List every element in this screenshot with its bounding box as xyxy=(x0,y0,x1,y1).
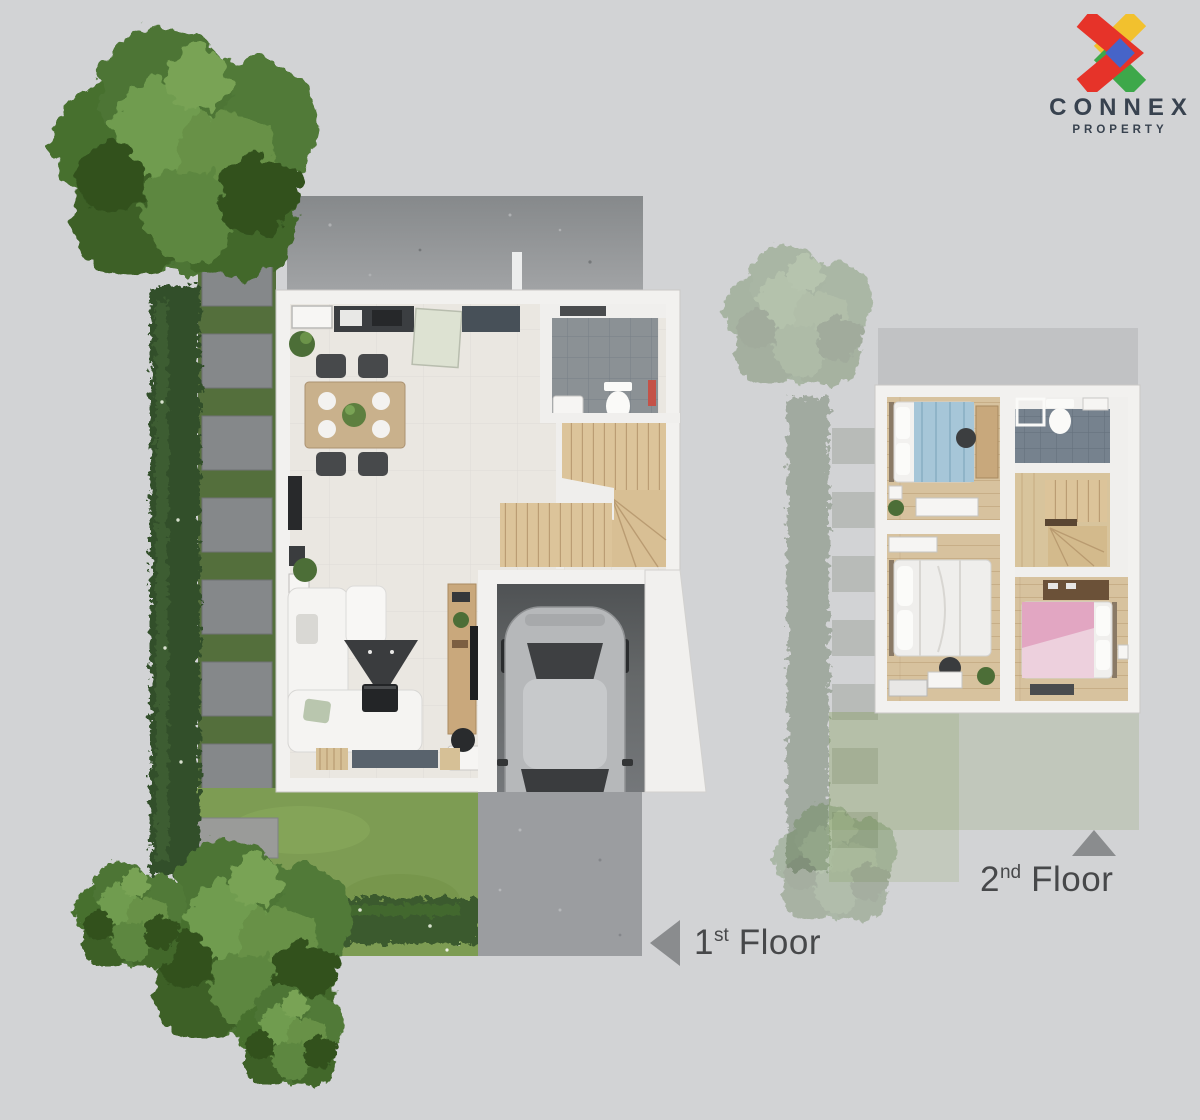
side-hedge xyxy=(150,286,200,876)
kitchen-counter-2 xyxy=(462,306,520,332)
pillow xyxy=(1096,606,1110,636)
car-rear-deck xyxy=(525,614,605,626)
house2-center-wall xyxy=(1000,397,1015,701)
logo-subtitle-text: PROPERTY xyxy=(1072,124,1167,136)
refrigerator xyxy=(412,308,462,367)
connex-logo: CONNEX PROPERTY xyxy=(1040,14,1196,136)
toilet-tank xyxy=(604,382,632,391)
console-plant xyxy=(453,612,469,628)
toilet2 xyxy=(1049,408,1071,434)
scene-svg xyxy=(0,0,1200,1120)
house-first-floor xyxy=(276,290,706,792)
dining-chair xyxy=(316,354,346,378)
bedroom3-nightstand xyxy=(1118,645,1128,659)
bedroom1-plant xyxy=(888,500,904,516)
bathroom2-vanity xyxy=(1083,398,1108,410)
pillow xyxy=(897,610,913,650)
entry-slat-mat xyxy=(440,748,460,770)
ghost-top-tree xyxy=(725,245,872,386)
car-rear-glass xyxy=(527,643,603,681)
stairs-winders xyxy=(610,490,666,567)
tv-screen xyxy=(470,626,478,700)
logo-brand-text: CONNEX xyxy=(1049,94,1194,122)
bedroom-2 xyxy=(887,534,1000,701)
second-floor-plan xyxy=(725,245,1140,922)
stairs-lower-flight xyxy=(500,503,612,567)
stairwell-2f xyxy=(1015,473,1128,577)
bedroom1-dresser xyxy=(916,498,978,516)
bedroom2-desk xyxy=(928,672,962,688)
kitchen-sink xyxy=(340,310,362,326)
ghost-patio xyxy=(878,328,1138,390)
stairwell-winders xyxy=(1048,526,1107,566)
bathroom-vent xyxy=(560,306,606,316)
bedroom2-dresser-top xyxy=(889,537,937,552)
pillow xyxy=(896,407,910,439)
cooktop xyxy=(372,310,402,326)
first-floor-plan xyxy=(54,27,706,1087)
patio-wall-stub xyxy=(512,252,522,294)
bedroom3-bench xyxy=(1030,684,1074,695)
sage-pillow xyxy=(303,698,332,723)
bedroom2-dresser xyxy=(889,680,927,696)
bed1-headboard xyxy=(889,402,894,482)
driveway xyxy=(478,792,642,956)
rear-patio-slab xyxy=(287,196,643,294)
ghost-hedge xyxy=(787,398,829,870)
up-arrow-icon xyxy=(1072,830,1116,856)
car-mirror xyxy=(497,759,508,766)
dining-chair xyxy=(316,452,346,476)
entry-mat xyxy=(352,750,438,768)
bathroom-wall xyxy=(540,304,552,416)
pillow xyxy=(897,566,913,606)
bedroom1-desk xyxy=(976,406,998,478)
first-floor-label: 1stFloor xyxy=(650,920,821,966)
living-room xyxy=(288,584,484,770)
wall-shelf xyxy=(288,476,302,530)
second-floor-text: 2ndFloor xyxy=(980,860,1113,900)
property-floorplan-image: 1stFloor 2ndFloor CONNEX PROPERTY xyxy=(0,0,1200,1120)
dining-chair xyxy=(358,452,388,476)
bedroom-1 xyxy=(887,397,1000,534)
house-second-floor xyxy=(875,385,1140,713)
speaker xyxy=(452,592,470,602)
entry-slat-mat xyxy=(316,748,348,770)
dining-chair xyxy=(358,354,388,378)
top-left-tree xyxy=(54,27,317,280)
bed2-headboard xyxy=(889,560,894,656)
toilet2-tank xyxy=(1046,399,1074,408)
red-towel xyxy=(648,380,656,406)
connex-x-icon xyxy=(1076,14,1160,92)
rear-patio xyxy=(287,196,643,294)
books xyxy=(452,640,468,648)
bottom-left-trees xyxy=(75,839,352,1087)
car-roof xyxy=(523,679,607,769)
pillow xyxy=(1096,640,1110,670)
kitchen-sideboard xyxy=(292,306,332,328)
garage-wall xyxy=(478,570,497,792)
bedroom2-plant xyxy=(977,667,995,685)
first-floor-text: 1stFloor xyxy=(694,923,821,963)
second-floor-label: 2ndFloor xyxy=(980,826,1130,906)
stepping-stones xyxy=(202,252,272,798)
sofa-ottoman xyxy=(346,586,386,644)
left-arrow-icon xyxy=(650,920,680,966)
bathroom-2f xyxy=(1015,397,1128,473)
table-plant xyxy=(342,403,366,427)
stairwell-void xyxy=(1045,519,1077,526)
bedroom-3 xyxy=(1015,577,1128,701)
pillow xyxy=(896,443,910,475)
bed3-headboard xyxy=(1112,602,1117,678)
stairwell-treads xyxy=(1045,480,1107,522)
corner-plant xyxy=(293,558,317,582)
nightstand xyxy=(889,486,902,499)
bedroom1-chair xyxy=(956,428,976,448)
car-mirror xyxy=(622,759,633,766)
gray-cushion xyxy=(296,614,318,644)
garage-door-leaf xyxy=(645,570,706,792)
